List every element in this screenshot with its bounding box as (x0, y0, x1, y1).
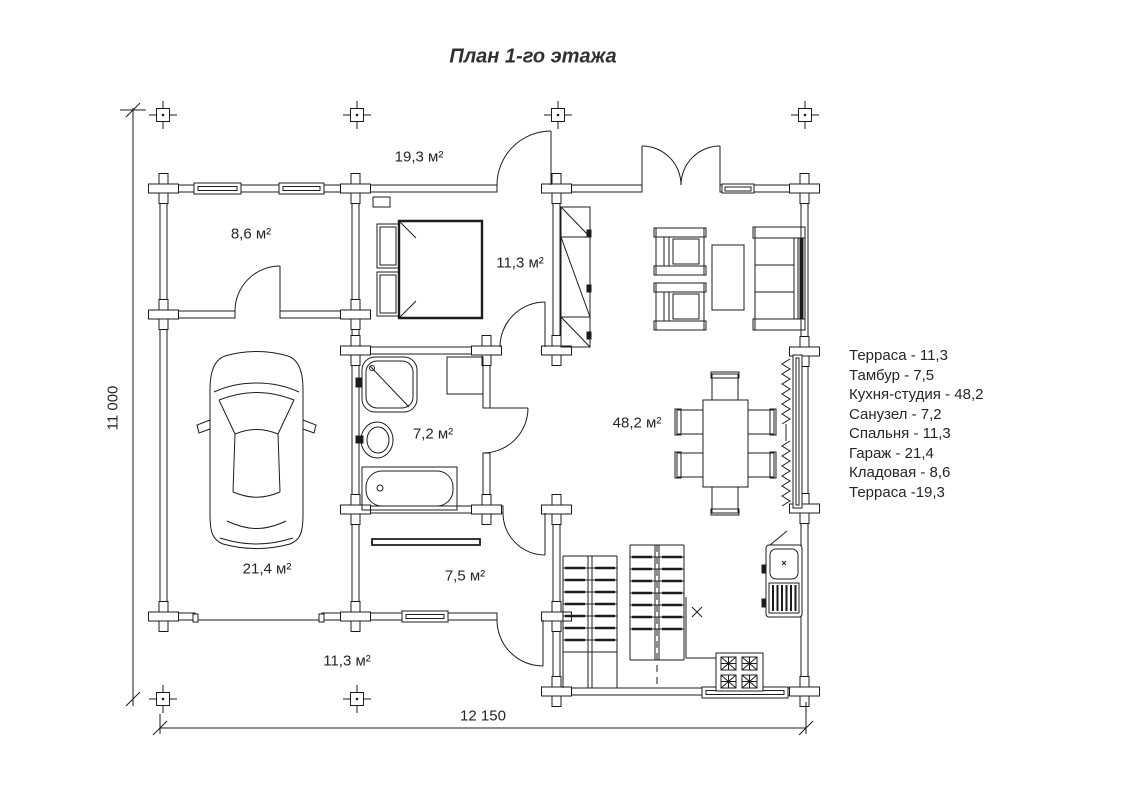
doors (235, 131, 720, 666)
room-label-kitchen-studio: 48,2 м² (613, 415, 662, 432)
room-label-bathroom: 7,2 м² (413, 426, 453, 443)
legend-item-terrace-top: Терраса - 11,3 (849, 346, 983, 366)
legend-item-bedroom: Спальня - 11,3 (849, 424, 983, 444)
coffee-table (712, 245, 744, 310)
legend-item-kitchen-studio: Кухня-студия - 48,2 (849, 385, 983, 405)
room-label-storage: 8,6 м² (231, 226, 271, 243)
dimension-height: 11 000 (105, 386, 122, 431)
stairs (563, 545, 684, 688)
room-label-terrace-bottom: 11,3 м² (323, 653, 371, 670)
legend-item-terrace-bottom: Терраса -19,3 (849, 483, 983, 503)
room-label-bedroom: 11,3 м² (496, 255, 544, 272)
car (197, 352, 316, 549)
wall-corner-stubs (149, 174, 820, 707)
bed (373, 197, 482, 318)
dimension-width: 12 150 (460, 708, 506, 725)
sofa (753, 227, 805, 330)
room-label-garage: 21,4 м² (243, 561, 292, 578)
page-title: План 1-го этажа (449, 46, 616, 69)
legend-item-garage: Гараж - 21,4 (849, 444, 983, 464)
armchairs (654, 228, 706, 330)
room-legend: Терраса - 11,3 Тамбур - 7,5 Кухня-студия… (849, 346, 983, 502)
dimension-lines (120, 103, 813, 735)
dining-set (675, 372, 776, 515)
legend-item-bathroom: Санузел - 7,2 (849, 405, 983, 425)
legend-item-vestibule: Тамбур - 7,5 (849, 366, 983, 386)
kitchen-unit (686, 531, 802, 691)
legend-item-storage: Кладовая - 8,6 (849, 463, 983, 483)
floor-plan-page: План 1-го этажа 19,3 м² 8,6 м² 11,3 м² 7… (0, 0, 1123, 794)
room-label-vestibule: 7,5 м² (445, 568, 485, 585)
curtain-zigzag (782, 359, 790, 506)
room-label-terrace-top: 19,3 м² (395, 149, 444, 166)
wardrobe (561, 207, 591, 347)
vestibule-cabinet (372, 539, 480, 545)
walls (160, 185, 808, 695)
